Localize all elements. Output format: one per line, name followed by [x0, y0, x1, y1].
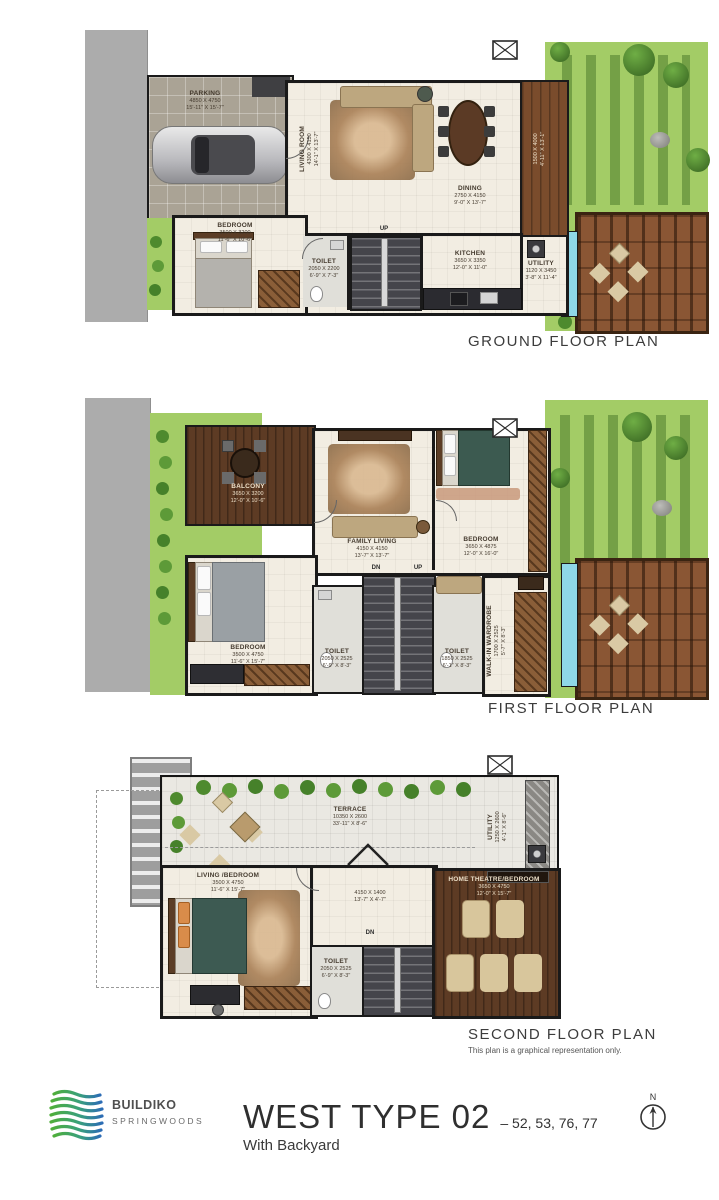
room-label-toilet: TOILET 2050 X 2525 6'-9" X 8'-3" [310, 958, 362, 980]
living-rug [328, 444, 410, 514]
room-label-deck: 1500 X 4000 4'-11" X 13'-1" [533, 117, 547, 181]
planter-column [156, 430, 169, 443]
room-label-home-theatre: HOME THEATRE/BEDROOM 3650 X 4750 12'-0" … [438, 876, 550, 898]
tree-icon [663, 62, 689, 88]
room-name: BALCONY [218, 483, 278, 491]
room-name: BEDROOM [216, 644, 280, 652]
brand-name: BUILDIKO [112, 1098, 176, 1112]
tree-icon [622, 412, 652, 442]
room-label-toilet-right: TOILET 1850 X 2525 6'-1" X 8'-3" [432, 648, 482, 670]
room-label-dining: DINING 2750 X 4150 9'-0" X 13'-7" [442, 185, 498, 207]
room-name: LIVING /BEDROOM [186, 872, 270, 880]
room-dim-metric: 3500 X 4750 [186, 880, 270, 887]
room-dim-metric: 4850 X 4750 [173, 98, 237, 105]
rock-icon [650, 132, 670, 148]
toilet-floor [312, 585, 366, 694]
plan-subtitle: With Backyard [243, 1137, 603, 1154]
stove-icon [450, 292, 468, 306]
room-dim-metric: 3500 X 4750 [216, 652, 280, 659]
room-dim-metric: 1850 X 2525 [432, 656, 482, 663]
stair-rail [394, 577, 401, 691]
room-dim-metric: 3650 X 4750 [438, 884, 550, 891]
bed-blanket [195, 258, 252, 308]
toilet-sink-icon [330, 240, 344, 250]
room-label-utility: UTILITY 1120 X 3450 3'-8" X 11'-4" [519, 260, 563, 282]
room-dim-imperial: 11'-6" X 10'-6" [203, 237, 267, 244]
tree-icon [550, 42, 570, 62]
room-name: TERRACE [312, 806, 388, 814]
room-name: LIVING ROOM [299, 117, 307, 181]
room-name: BEDROOM [450, 536, 512, 544]
lower-floor-projection [96, 790, 164, 988]
wardrobe-unit [244, 664, 310, 686]
side-table-icon [417, 86, 433, 102]
car-icon [152, 126, 288, 184]
room-label-bedroom-right: BEDROOM 3650 X 4875 12'-0" X 16'-0" [450, 536, 512, 558]
plan-title-block: WEST TYPE 02 – 52, 53, 76, 77 With Backy… [243, 1098, 603, 1154]
dining-table-icon [448, 100, 488, 166]
toilet-floor [432, 585, 486, 694]
car-windshield [195, 137, 209, 173]
road-strip [85, 30, 148, 322]
wardrobe-unit [244, 986, 312, 1010]
bed-blanket [212, 562, 265, 642]
sofa-icon [436, 576, 482, 594]
room-dim-metric: 3500 X 3200 [203, 230, 267, 237]
bedside-rug [436, 488, 520, 500]
tree-icon [623, 44, 655, 76]
room-dim-imperial: 12'-0" X 15'-7" [438, 891, 550, 898]
water-feature [561, 563, 578, 687]
room-dim-imperial: 13'-7" X 13'-7" [338, 553, 406, 560]
room-label-bedroom: BEDROOM 3500 X 3200 11'-6" X 10'-6" [203, 222, 267, 244]
room-name: FAMILY LIVING [338, 538, 406, 546]
room-dim-imperial: 6'-9" X 7'-3" [300, 273, 348, 280]
side-garden [147, 218, 175, 310]
stairs-dn-label: DN [358, 930, 382, 936]
hedge-row [558, 315, 572, 329]
room-dim-metric: 4300 X 4150 [307, 117, 314, 181]
side-table-icon [416, 520, 430, 534]
room-dim-imperial: 4'-1" X 8'-6" [502, 787, 509, 867]
room-dim-imperial: 6'-1" X 8'-3" [432, 663, 482, 670]
stairs-dn-label: DN [364, 565, 388, 571]
stair-rail [381, 238, 388, 307]
sofa-icon [412, 104, 434, 172]
sofa-icon [332, 516, 418, 538]
room-name: TOILET [432, 648, 482, 656]
room-dim-imperial: 5'-7" X 8'-3" [501, 605, 508, 677]
plan-disclaimer: This plan is a graphical representation … [468, 1046, 622, 1055]
room-name: UTILITY [519, 260, 563, 268]
room-label-utility: UTILITY 1250 X 2600 4'-1" X 8'-6" [487, 787, 509, 867]
duct-shaft-icon [487, 755, 513, 775]
washer-icon [528, 845, 546, 863]
living-rug [330, 100, 415, 180]
room-name: TOILET [310, 958, 362, 966]
room-dim-imperial: 9'-0" X 13'-7" [442, 200, 498, 207]
tree-icon [550, 468, 570, 488]
tree-icon [664, 436, 688, 460]
room-name: TOILET [300, 258, 348, 266]
bedroom-rug [238, 890, 300, 986]
room-dim-imperial: 12'-0" X 16'-0" [450, 551, 512, 558]
kitchen-counter [423, 288, 522, 310]
room-dim-imperial: 11'-6" X 15'-7" [186, 887, 270, 894]
room-dim-metric: 4150 X 4150 [338, 546, 406, 553]
balcony-chairs [222, 440, 234, 452]
recliner-row-2 [446, 954, 474, 992]
room-label-family-living: FAMILY LIVING 4150 X 4150 13'-7" X 13'-7… [338, 538, 406, 560]
room-label-bedroom-left: BEDROOM 3500 X 4750 11'-6" X 15'-7" [216, 644, 280, 666]
room-dim-metric: 3650 X 3200 [218, 491, 278, 498]
ground-floor-title: GROUND FLOOR PLAN [468, 333, 659, 350]
plan-unit-numbers: – 52, 53, 76, 77 [500, 1115, 597, 1131]
pergola-deck [575, 212, 709, 334]
wardrobe-strip [528, 430, 547, 572]
room-dim-metric: 3650 X 3350 [438, 258, 502, 265]
bed-blanket [458, 430, 510, 486]
road-strip [85, 398, 151, 692]
room-dim-imperial: 4'-11" X 13'-1" [540, 117, 547, 181]
room-dim-metric: 1500 X 4000 [533, 117, 540, 181]
washer-icon [527, 240, 545, 258]
room-dim-imperial: 14'-1" X 13'-7" [314, 117, 321, 181]
stair-rail [394, 947, 401, 1013]
wardrobe-unit [258, 270, 300, 308]
tree-icon [686, 148, 710, 172]
duct-shaft-icon [492, 418, 518, 438]
buildiko-logo-icon [48, 1086, 106, 1142]
room-dim-metric: 2750 X 4150 [442, 193, 498, 200]
plan-title-row: WEST TYPE 02 – 52, 53, 76, 77 [243, 1098, 603, 1136]
room-dim-imperial: 12'-0" X 11'-0" [438, 265, 502, 272]
terrace-planters-left [170, 792, 183, 805]
plan-type-title: WEST TYPE 02 [243, 1098, 490, 1136]
pillow-icon [178, 926, 190, 948]
rock-icon [652, 500, 672, 516]
room-dim-imperial: 6'-9" X 8'-3" [310, 973, 362, 980]
stairs-up-label: UP [372, 226, 396, 232]
room-name: KITCHEN [438, 250, 502, 258]
north-compass-icon [638, 1103, 668, 1136]
room-dim-metric: 10350 X 2600 [312, 814, 388, 821]
terrace-planters [196, 780, 211, 795]
room-label-passage: 4150 X 1400 13'-7" X 4'-7" [330, 890, 410, 904]
dining-chairs [438, 106, 449, 117]
room-dim-metric: 2050 X 2200 [300, 266, 348, 273]
balcony-table-icon [230, 448, 260, 478]
room-dim-imperial: 13'-7" X 4'-7" [330, 897, 410, 904]
desk-icon [518, 576, 544, 590]
duct-shaft-icon [492, 40, 518, 60]
room-dim-metric: 2050 X 2525 [312, 656, 362, 663]
room-name: PARKING [173, 90, 237, 98]
partition-wall [432, 428, 435, 570]
room-name: DINING [442, 185, 498, 193]
room-dim-imperial: 11'-6" X 15'-7" [216, 659, 280, 666]
first-floor-title: FIRST FLOOR PLAN [488, 700, 654, 717]
room-name: TOILET [312, 648, 362, 656]
room-dim-imperial: 33'-11" X 8'-6" [312, 821, 388, 828]
recliner-row-1 [462, 900, 490, 938]
stool-icon [212, 1004, 224, 1016]
room-name: WALK-IN WARDROBE [486, 605, 494, 677]
north-label: N [638, 1092, 668, 1102]
pillow-icon [197, 592, 211, 616]
brand-subtitle: SPRINGWOODS [112, 1116, 204, 1126]
pillow-icon [178, 902, 190, 924]
pillow-icon [444, 434, 456, 454]
room-label-toilet: TOILET 2050 X 2200 6'-9" X 7'-3" [300, 258, 348, 280]
passage-floor [310, 865, 438, 953]
roof-peak-mark [346, 843, 390, 865]
room-label-balcony: BALCONY 3650 X 3200 12'-0" X 10'-6" [218, 483, 278, 505]
room-dim-metric: 1250 X 2600 [495, 787, 502, 867]
terrace-dashed-line [165, 847, 475, 848]
kitchen-sink-icon [480, 292, 498, 304]
room-dim-metric: 1700 X 2525 [494, 605, 501, 677]
room-label-kitchen: KITCHEN 3650 X 3350 12'-0" X 11'-0" [438, 250, 502, 272]
toilet-sink-icon [318, 590, 332, 600]
toilet-wc-icon [318, 993, 331, 1009]
pergola-deck [575, 558, 709, 700]
desk-icon [190, 985, 240, 1005]
second-floor-title: SECOND FLOOR PLAN [468, 1026, 657, 1043]
room-dim-imperial: 3'-8" X 11'-4" [519, 275, 563, 282]
side-garden-bushes [150, 236, 162, 248]
tv-unit [338, 430, 412, 441]
stairs-up-label: UP [406, 565, 430, 571]
dresser-icon [190, 664, 244, 684]
room-name: UTILITY [487, 787, 495, 867]
room-dim-imperial: 15'-11" X 15'-7" [173, 105, 237, 112]
bed-blanket [192, 898, 247, 974]
room-dim-metric: 2050 X 2525 [310, 966, 362, 973]
room-dim-imperial: 6'-9" X 8'-3" [312, 663, 362, 670]
room-dim-metric: 1120 X 3450 [519, 268, 563, 275]
room-label-terrace: TERRACE 10350 X 2600 33'-11" X 8'-6" [312, 806, 388, 828]
north-indicator: N [638, 1092, 668, 1136]
room-label-living-room: LIVING ROOM 4300 X 4150 14'-1" X 13'-7" [299, 117, 321, 181]
room-dim-metric: 3650 X 4875 [450, 544, 512, 551]
room-name: BEDROOM [203, 222, 267, 230]
floor-plan-sheet: UP PARKING 4850 X 4750 15'-11" X 15'-7" … [0, 0, 719, 1200]
room-label-walkin-wardrobe: WALK-IN WARDROBE 1700 X 2525 5'-7" X 8'-… [486, 605, 508, 677]
pillow-icon [444, 456, 456, 476]
room-label-toilet-left: TOILET 2050 X 2525 6'-9" X 8'-3" [312, 648, 362, 670]
room-name: HOME THEATRE/BEDROOM [438, 876, 550, 884]
room-dim-imperial: 12'-0" X 10'-6" [218, 498, 278, 505]
wardrobe-strip [514, 592, 547, 692]
pillow-icon [197, 566, 211, 590]
toilet-wc-icon [310, 286, 323, 302]
room-label-living-bedroom: LIVING /BEDROOM 3500 X 4750 11'-6" X 15'… [186, 872, 270, 894]
room-dim-metric: 4150 X 1400 [330, 890, 410, 897]
room-label-parking: PARKING 4850 X 4750 15'-11" X 15'-7" [173, 90, 237, 112]
